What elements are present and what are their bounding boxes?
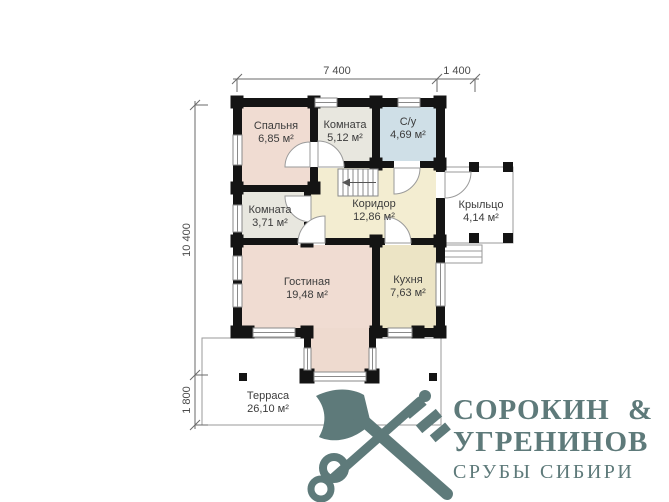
window bbox=[436, 263, 445, 306]
window bbox=[314, 372, 366, 381]
staircase bbox=[338, 169, 378, 196]
window bbox=[253, 328, 295, 337]
room-label-kitchen: Кухня 7,63 м² bbox=[390, 274, 426, 300]
porch-post bbox=[469, 233, 479, 243]
room-label-living: Гостиная 19,48 м² bbox=[284, 276, 330, 302]
window bbox=[233, 284, 242, 307]
room-label-room2: Комната 5,12 м² bbox=[323, 119, 366, 145]
window bbox=[369, 348, 376, 370]
company-logo-text: СОРОКИН & УГРЕНИНОВ СРУБЫ СИБИРИ bbox=[453, 394, 667, 487]
window bbox=[398, 98, 420, 107]
window bbox=[388, 328, 412, 337]
key-bow-ring bbox=[311, 479, 331, 499]
room-label-terrace: Терраса 26,10 м² bbox=[247, 390, 289, 416]
window bbox=[233, 256, 242, 280]
dimension-width-porch: 1 400 bbox=[443, 65, 471, 77]
floor-plan-page: Спальня 6,85 м² Комната 5,12 м² С/у 4,69… bbox=[0, 0, 669, 502]
room-label-corridor: Коридор 12,86 м² bbox=[352, 198, 395, 224]
bay-fill bbox=[311, 328, 369, 372]
room-label-bedroom: Спальня 6,85 м² bbox=[254, 120, 298, 146]
room-label-room3: Комната 3,71 м² bbox=[248, 204, 291, 230]
room-label-bathroom: С/у 4,69 м² bbox=[390, 116, 426, 142]
porch-post bbox=[503, 162, 513, 172]
porch-post bbox=[469, 162, 479, 172]
terrace-post bbox=[239, 373, 247, 381]
key-bow-ring bbox=[323, 457, 345, 479]
window bbox=[304, 348, 311, 370]
porch-steps bbox=[444, 245, 482, 263]
logo-line-2: УГРЕНИНОВ bbox=[453, 427, 667, 458]
window bbox=[233, 135, 242, 165]
dimension-depth-terrace: 1 800 bbox=[181, 386, 193, 414]
dimension-height-main: 10 400 bbox=[181, 223, 193, 257]
porch-post bbox=[503, 233, 513, 243]
room-label-porch: Крыльцо 4,14 м² bbox=[459, 199, 504, 225]
logo-line-3: СРУБЫ СИБИРИ bbox=[453, 458, 667, 487]
window bbox=[233, 205, 242, 232]
terrace-post bbox=[429, 373, 437, 381]
window bbox=[315, 98, 337, 107]
dimension-width-main: 7 400 bbox=[323, 65, 351, 77]
logo-line-1: СОРОКИН & bbox=[453, 394, 667, 427]
axe-handle bbox=[356, 414, 447, 494]
